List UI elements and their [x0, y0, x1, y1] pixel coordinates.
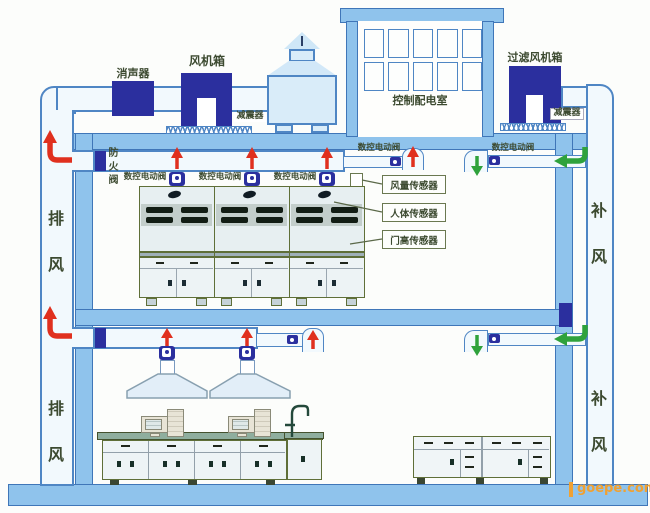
filter-fan-springs-icon	[500, 123, 566, 131]
watermark-bar	[569, 482, 573, 497]
fire-damper-label: 防火阀	[107, 147, 120, 188]
computer-tower	[167, 409, 184, 437]
exhaust-riser-label-upper: 排风	[46, 196, 66, 288]
fume-hood	[139, 186, 215, 308]
monitor-stand	[237, 433, 247, 437]
upper-supply-outlet-elbow	[464, 150, 488, 172]
window	[364, 29, 384, 58]
filter-fan-box-door	[526, 95, 543, 123]
stack-cap-tick	[301, 36, 303, 46]
silencer-box	[112, 81, 154, 116]
bench-foot	[188, 480, 197, 485]
valve-actuator-icon	[390, 157, 401, 166]
control-room-windows	[364, 29, 482, 91]
lower-exhaust-duct	[93, 327, 258, 349]
lower-exhaust-duct-thin	[256, 333, 306, 347]
stack-neck	[289, 49, 315, 62]
window	[364, 62, 384, 91]
lower-supply-duct	[488, 333, 586, 346]
hood-valve-icon	[169, 172, 185, 186]
window	[388, 29, 408, 58]
canopy-hood	[127, 374, 207, 398]
fire-damper-lower	[95, 328, 106, 348]
valve-actuator-icon	[489, 334, 500, 343]
lab-ventilation-diagram: 排风 排风 补风 补风 消声器 风机箱 减震器 控制配电室 过滤风机箱 减震器	[0, 0, 650, 513]
right-bench	[413, 436, 551, 478]
monitor-stand	[150, 433, 160, 437]
sink-cabinet	[287, 439, 322, 480]
roof-exhaust-duct	[56, 86, 270, 112]
control-room-label: 控制配电室	[368, 95, 472, 107]
computer-tower	[254, 409, 271, 437]
valve-actuator-icon	[489, 156, 500, 165]
supply-riser-label-lower: 补风	[589, 376, 609, 468]
fan-box-door	[197, 98, 216, 126]
sink-counter	[284, 432, 324, 439]
fume-hood	[214, 186, 290, 308]
fire-damper-upper	[95, 151, 106, 171]
hood-valve-icon	[244, 172, 260, 186]
canopy-neck	[160, 360, 175, 375]
canopy-hood	[210, 374, 290, 398]
canopy-valve-icon	[159, 346, 175, 360]
silencer-label: 消声器	[104, 68, 162, 80]
ground-slab	[8, 484, 648, 506]
bench-foot	[110, 480, 119, 485]
cnc-valve-label-1: 数控电动阀	[122, 173, 168, 182]
window	[413, 29, 433, 58]
fan-box-springs-icon	[166, 126, 252, 134]
vibration-damper-label-left: 减震器	[234, 112, 266, 122]
valve-actuator-icon	[287, 335, 298, 344]
control-room-wall-right	[482, 21, 494, 137]
cnc-valve-label-2: 数控电动阀	[197, 173, 243, 182]
bench-foot	[540, 478, 548, 484]
bench-body	[102, 440, 287, 480]
cnc-valve-label-4: 数控电动阀	[352, 144, 406, 153]
cnc-valve-label-5: 数控电动阀	[486, 144, 540, 153]
supply-riser-label-upper: 补风	[589, 188, 609, 280]
window	[388, 62, 408, 91]
window	[462, 29, 482, 58]
middle-floor-slab	[75, 309, 573, 326]
supply-riser-elbow	[586, 84, 614, 110]
lower-exhaust-inlet-elbow	[302, 328, 324, 352]
sensor-callout-human: 人体传感器	[382, 203, 446, 222]
hood-valve-icon	[319, 172, 335, 186]
stack-body	[267, 75, 337, 125]
lower-supply-outlet-elbow	[464, 330, 488, 352]
bench-foot	[417, 478, 425, 484]
vibration-damper-label-right: 减震器	[550, 108, 584, 120]
window	[437, 62, 457, 91]
wall-damper-bar	[559, 303, 572, 327]
exhaust-riser-label-lower: 排风	[46, 386, 66, 478]
sensor-callout-airflow: 风量传感器	[382, 175, 446, 194]
airflow-sensor-unit	[350, 173, 363, 187]
window	[462, 62, 482, 91]
upper-supply-duct	[488, 155, 586, 168]
fan-box-label: 风机箱	[179, 55, 235, 68]
upper-exhaust-duct	[93, 150, 345, 172]
bench-foot	[476, 478, 484, 484]
bench-foot	[266, 480, 275, 485]
filter-fan-box-label: 过滤风机箱	[497, 52, 573, 64]
canopy-valve-icon	[239, 346, 255, 360]
monitor-screen	[232, 419, 249, 430]
watermark-text: goepe.com	[577, 481, 650, 496]
sensor-callout-door-height: 门高传感器	[382, 230, 446, 249]
stack-foot-left	[275, 124, 293, 133]
control-room-wall-left	[346, 21, 358, 137]
window	[437, 29, 457, 58]
stack-foot-right	[311, 124, 329, 133]
cnc-valve-label-3: 数控电动阀	[272, 173, 318, 182]
fume-hood	[289, 186, 365, 308]
monitor-screen	[145, 419, 162, 430]
stack-flare	[267, 61, 337, 76]
canopy-neck	[240, 360, 255, 375]
window	[413, 62, 433, 91]
